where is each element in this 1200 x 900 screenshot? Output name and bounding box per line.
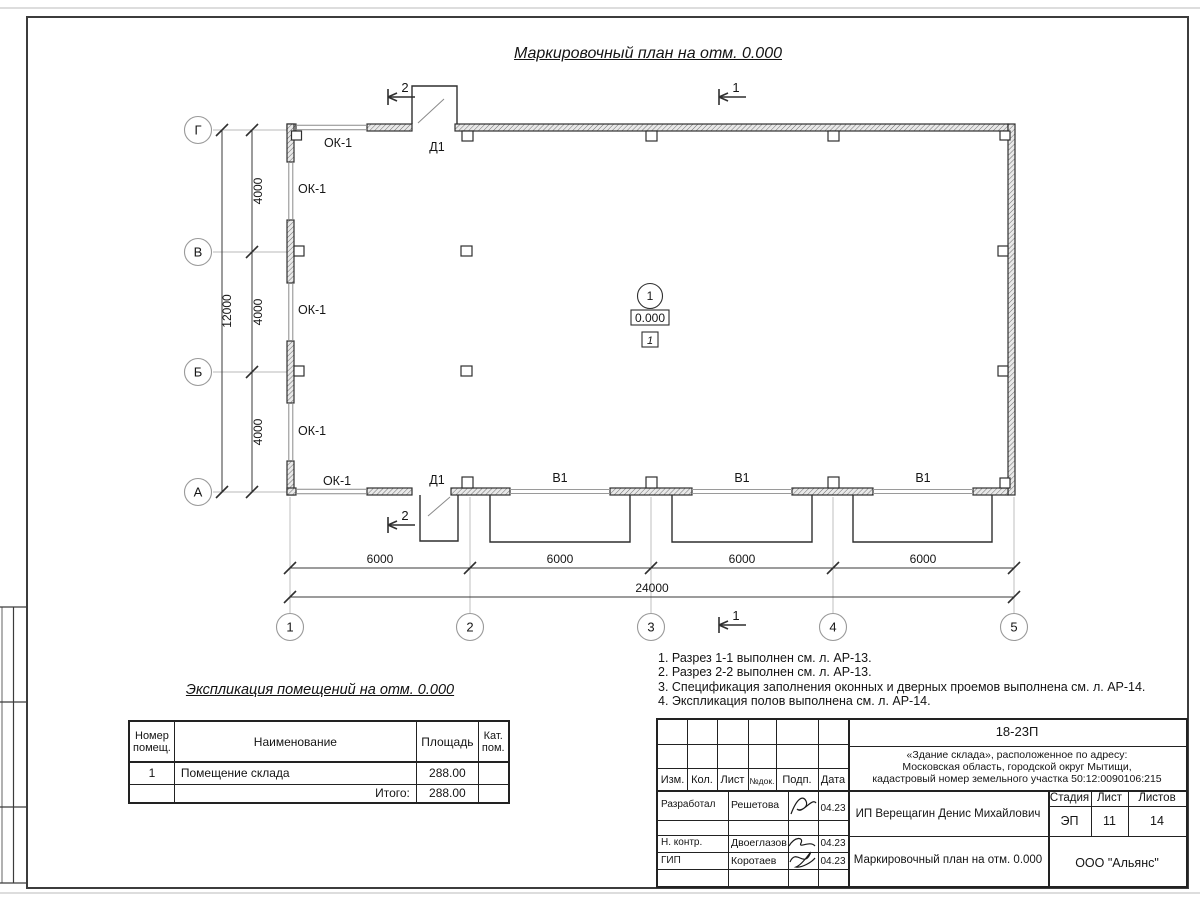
sheet-number: 11 xyxy=(1091,814,1128,828)
signature-developed xyxy=(788,792,818,820)
axis-1: 1 xyxy=(286,620,293,635)
rev-header-list: Лист xyxy=(717,774,748,787)
role-gip: ГИП xyxy=(661,855,727,867)
axis-2: 2 xyxy=(466,620,473,635)
room-number: 1 xyxy=(647,289,654,303)
axis-g: Г xyxy=(194,123,201,138)
door-mark-top: Д1 xyxy=(429,140,444,154)
name-ncontrol: Двоеглазов xyxy=(731,837,787,849)
rev-header-izm: Изм. xyxy=(658,774,687,787)
total-label: Итого: xyxy=(174,784,416,803)
col-header-number: Номер помещ. xyxy=(129,721,174,762)
signature-ncontrol-gip xyxy=(786,834,818,872)
room-elevation: 0.000 xyxy=(635,311,665,325)
stage-header: Стадия xyxy=(1048,792,1091,805)
explication-title: Экспликация помещений на отм. 0.000 xyxy=(150,682,490,698)
company-name: ООО "Альянс" xyxy=(1048,856,1186,870)
drawing-name: Маркировочный план на отм. 0.000 xyxy=(848,854,1048,867)
dimension-ticks xyxy=(216,124,1020,603)
room-row-cat xyxy=(478,762,508,784)
opening-marks: ОК-1 ОК-1 ОК-1 ОК-1 ОК-1 Д1 Д1 В1 В1 В1 xyxy=(298,136,931,488)
window-mark-left-2: ОК-1 xyxy=(298,303,326,317)
dim-6000-2: 6000 xyxy=(547,552,574,566)
plan-title: Маркировочный план на отм. 0.000 xyxy=(448,45,848,63)
title-block: Изм. Кол. Лист №док. Подп. Дата Разработ… xyxy=(656,718,1188,888)
gate-mark-1: В1 xyxy=(552,471,567,485)
dim-4000-3: 4000 xyxy=(251,418,265,445)
sheets-header: Листов xyxy=(1128,792,1186,805)
axis-labels: 1 2 3 4 5 Г В Б А xyxy=(194,123,1018,635)
total-area: 288.00 xyxy=(416,784,478,803)
axis-v: В xyxy=(194,245,203,260)
col-header-name: Наименование xyxy=(174,721,416,762)
rev-header-data: Дата xyxy=(818,774,848,787)
name-gip: Коротаев xyxy=(731,855,787,867)
client-name: ИП Верещагин Денис Михайлович xyxy=(848,808,1048,821)
dim-6000-1: 6000 xyxy=(367,552,394,566)
object-address-line-1: «Здание склада», расположенное по адресу… xyxy=(850,749,1184,761)
section-2-bottom-label: 2 xyxy=(401,508,408,523)
dim-12000: 12000 xyxy=(220,294,234,328)
window-mark-bottom: ОК-1 xyxy=(323,474,351,488)
object-address-line-3: кадастровый номер земельного участка 50:… xyxy=(850,773,1184,785)
role-ncontrol: Н. контр. xyxy=(661,837,727,849)
axis-b: Б xyxy=(194,365,203,380)
gate-openings xyxy=(510,490,973,494)
object-address-line-2: Московская область, городской округ Мыти… xyxy=(850,761,1184,773)
axis-5: 5 xyxy=(1010,620,1017,635)
explication-table: Номер помещ. Наименование Площадь Кат. п… xyxy=(128,720,510,804)
document-code: 18-23П xyxy=(848,725,1186,740)
dim-4000-1: 4000 xyxy=(251,177,265,204)
col-header-area: Площадь xyxy=(416,721,478,762)
room-marker-texts: 1 0.000 1 xyxy=(635,289,665,347)
rev-header-podp: Подп. xyxy=(776,774,818,787)
col-header-cat: Кат. пом. xyxy=(478,721,508,762)
window-mark-left-1: ОК-1 xyxy=(298,182,326,196)
window-mark-top: ОК-1 xyxy=(324,136,352,150)
gate-mark-2: В1 xyxy=(734,471,749,485)
door-swings xyxy=(418,99,450,516)
section-1-top-label: 1 xyxy=(732,80,739,95)
total-row: Итого: 288.00 xyxy=(129,784,509,803)
rev-header-ndok: №док. xyxy=(748,777,776,787)
axis-3: 3 xyxy=(647,620,654,635)
section-2-top-label: 2 xyxy=(401,80,408,95)
window-mark-left-3: ОК-1 xyxy=(298,424,326,438)
dim-24000: 24000 xyxy=(635,581,669,595)
name-developed: Решетова xyxy=(731,799,787,811)
dim-6000-4: 6000 xyxy=(910,552,937,566)
rev-header-kol: Кол. xyxy=(687,774,717,787)
notes-block: 1. Разрез 1-1 выполнен см. л. АР-13. 2. … xyxy=(658,651,1145,708)
door-mark-bottom: Д1 xyxy=(429,473,444,487)
axis-4: 4 xyxy=(829,620,836,635)
axis-a: А xyxy=(194,485,203,500)
table-row: 1 Помещение склада 288.00 xyxy=(129,762,509,784)
room-row-name: Помещение склада xyxy=(174,762,416,784)
dimension-lines xyxy=(222,130,1014,597)
drawing-sheet: 6000 6000 6000 6000 24000 4000 4000 4000… xyxy=(0,0,1200,900)
date-gip: 04.23 xyxy=(818,856,848,868)
section-1-bottom-label: 1 xyxy=(732,608,739,623)
sheets-total: 14 xyxy=(1128,814,1186,828)
dim-6000-3: 6000 xyxy=(729,552,756,566)
explication-header-row: Номер помещ. Наименование Площадь Кат. п… xyxy=(129,721,509,762)
vestibule-and-docks xyxy=(412,86,992,542)
side-stamp xyxy=(0,607,27,883)
note-line-1: 1. Разрез 1-1 выполнен см. л. АР-13. xyxy=(658,651,1145,665)
dim-4000-2: 4000 xyxy=(251,298,265,325)
sheet-header: Лист xyxy=(1091,792,1128,805)
gate-mark-3: В1 xyxy=(915,471,930,485)
room-row-number: 1 xyxy=(129,762,174,784)
note-line-4: 4. Экспликация полов выполнена см. л. АР… xyxy=(658,694,1145,708)
dimension-texts: 6000 6000 6000 6000 24000 4000 4000 4000… xyxy=(220,177,937,595)
note-line-3: 3. Спецификация заполнения оконных и две… xyxy=(658,680,1145,694)
role-developed: Разработал xyxy=(661,799,727,811)
date-developed: 04.23 xyxy=(818,803,848,815)
note-line-2: 2. Разрез 2-2 выполнен см. л. АР-13. xyxy=(658,665,1145,679)
room-row-area: 288.00 xyxy=(416,762,478,784)
date-ncontrol: 04.23 xyxy=(818,838,848,850)
floor-type-mark: 1 xyxy=(647,335,653,347)
axis-lines xyxy=(213,130,1014,613)
stage-value: ЭП xyxy=(1048,814,1091,828)
